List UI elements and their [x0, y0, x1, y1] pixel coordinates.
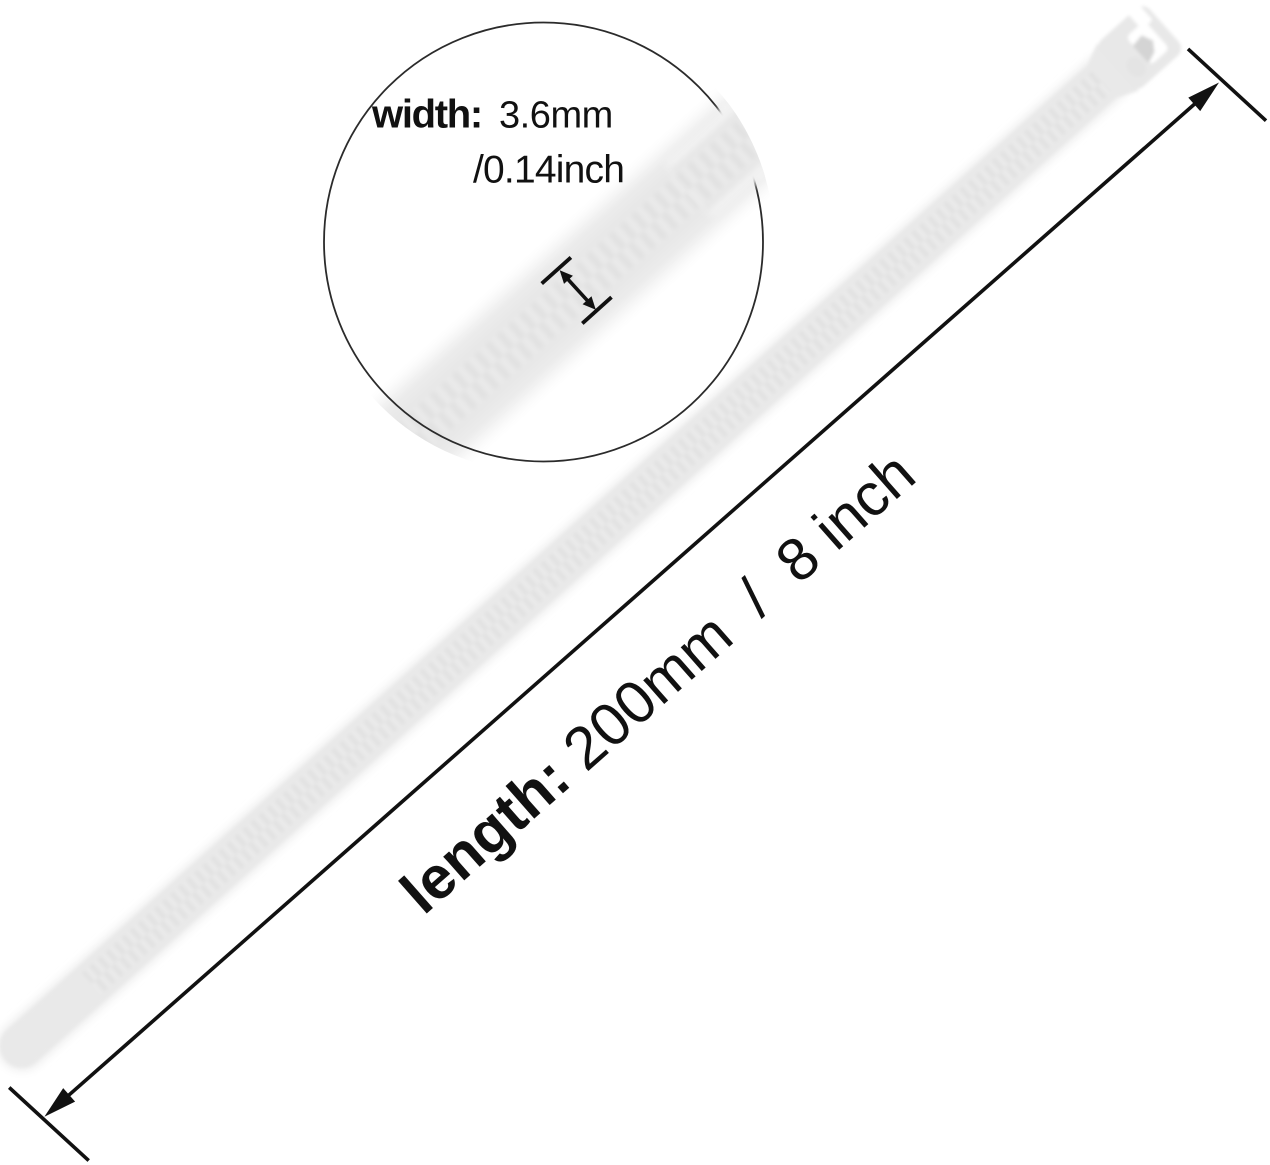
svg-text:width:: width: — [371, 93, 482, 137]
svg-text:/0.14inch: /0.14inch — [473, 149, 624, 192]
svg-text:3.6mm: 3.6mm — [499, 95, 613, 137]
